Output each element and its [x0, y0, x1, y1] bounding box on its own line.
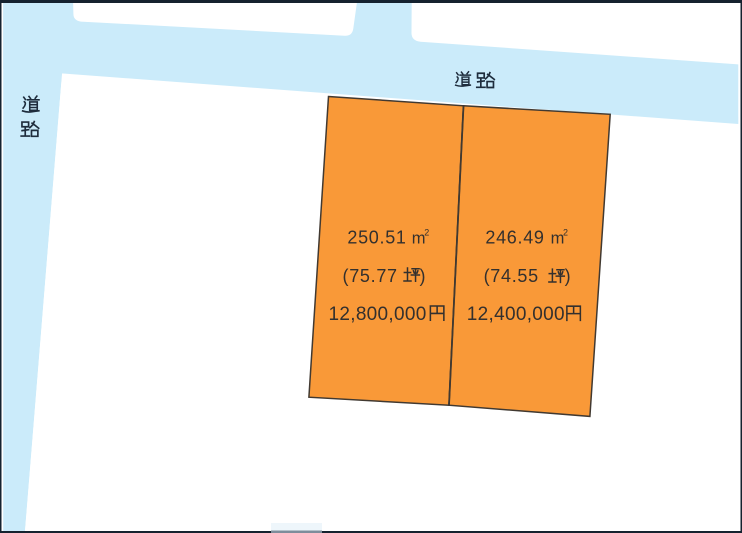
svg-text:(74.55: (74.55 — [484, 266, 539, 286]
svg-text:250.51: 250.51 — [347, 228, 406, 248]
svg-text:2: 2 — [563, 228, 568, 238]
svg-text:246.49: 246.49 — [485, 228, 544, 248]
svg-text:): ) — [420, 266, 426, 286]
svg-text:2: 2 — [424, 228, 429, 238]
svg-text:12,400,000: 12,400,000 — [467, 304, 565, 325]
svg-text:): ) — [565, 266, 571, 286]
svg-text:(75.77: (75.77 — [343, 266, 398, 286]
svg-text:12,800,000: 12,800,000 — [329, 304, 427, 325]
